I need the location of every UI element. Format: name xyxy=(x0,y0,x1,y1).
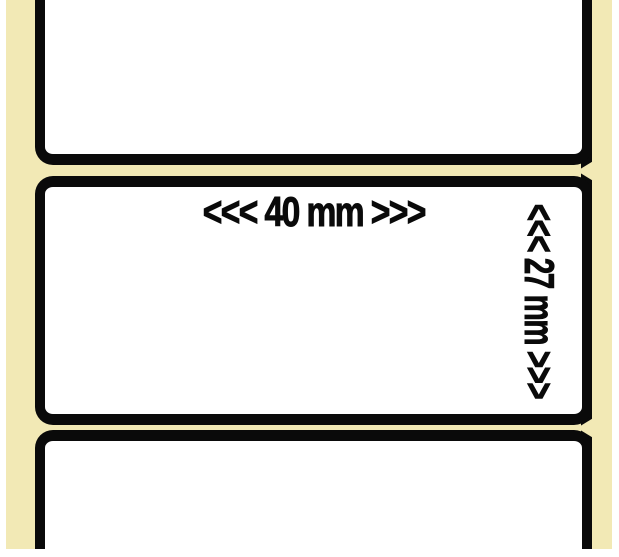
blank-label-top xyxy=(35,0,592,165)
label-width-dimension-text: <<< 40 mm >>> xyxy=(202,191,424,233)
label-width-dimension: <<< 40 mm >>> xyxy=(45,191,582,233)
blank-label-bottom xyxy=(35,430,592,557)
label-height-dimension-text: <<< 27 mm >>> xyxy=(518,203,560,397)
label-roll-photo: <<< 40 mm >>> <<< 27 mm >>> xyxy=(0,0,619,557)
photo-bottom-edge xyxy=(0,549,619,557)
label-height-dimension: <<< 27 mm >>> xyxy=(516,187,562,414)
blank-label-middle: <<< 40 mm >>> <<< 27 mm >>> xyxy=(35,176,592,425)
